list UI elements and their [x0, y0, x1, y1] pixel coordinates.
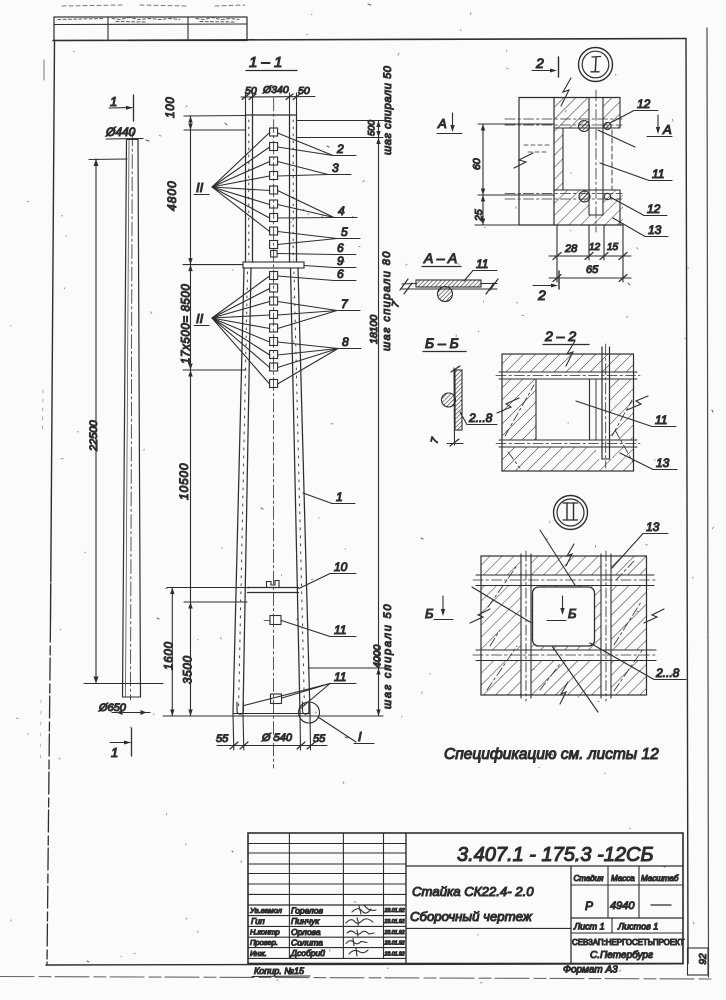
svg-text:50: 50	[298, 85, 310, 97]
svg-text:2 – 2: 2 – 2	[544, 328, 576, 344]
svg-text:Б: Б	[425, 606, 434, 621]
svg-text:Б – Б: Б – Б	[425, 335, 459, 351]
svg-text:100: 100	[165, 96, 177, 118]
svg-text:1600: 1600	[164, 641, 176, 670]
svg-text:2: 2	[535, 55, 544, 71]
svg-text:1: 1	[110, 94, 117, 109]
svg-text:Ø340: Ø340	[262, 84, 289, 96]
svg-text:2...8: 2...8	[655, 666, 680, 680]
svg-text:Формат А3: Формат А3	[563, 965, 618, 976]
svg-text:Инж.: Инж.	[250, 949, 267, 958]
svg-text:13: 13	[646, 520, 660, 534]
svg-text:A: A	[662, 122, 672, 137]
svg-text:12: 12	[637, 97, 651, 111]
svg-text:8: 8	[342, 335, 349, 349]
svg-text:Ø 540: Ø 540	[261, 732, 293, 744]
svg-text:65: 65	[586, 264, 599, 276]
svg-text:23.01.92: 23.01.92	[384, 952, 405, 958]
svg-text:Дсобрий: Дсобрий	[290, 948, 325, 958]
svg-text:II: II	[196, 311, 204, 326]
svg-text:3: 3	[332, 161, 339, 175]
svg-text:11: 11	[334, 670, 346, 684]
svg-text:Сборочный чертеж: Сборочный чертеж	[410, 909, 533, 924]
svg-text:Спецификацию см. листы 12: Спецификацию см. листы 12	[444, 746, 659, 763]
svg-text:7: 7	[429, 436, 441, 445]
svg-text:Листов 1: Листов 1	[617, 922, 658, 932]
svg-text:Гип: Гип	[251, 916, 265, 926]
svg-text:1: 1	[336, 490, 343, 504]
svg-text:Н.контр: Н.контр	[250, 928, 280, 937]
svg-text:10500: 10500	[177, 463, 191, 500]
svg-text:СЕВЗАП:НЕРГОСЕТЬПРОЕКТ: СЕВЗАП:НЕРГОСЕТЬПРОЕКТ	[572, 938, 685, 947]
svg-text:5: 5	[341, 225, 348, 239]
svg-text:A – A: A – A	[423, 250, 457, 266]
svg-text:1 – 1: 1 – 1	[249, 54, 282, 71]
svg-text:7: 7	[341, 297, 349, 311]
svg-text:шаг спирали 50: шаг спирали 50	[382, 65, 394, 155]
svg-text:2: 2	[336, 142, 344, 156]
svg-text:60: 60	[471, 158, 483, 170]
svg-text:2: 2	[537, 287, 546, 303]
svg-text:10: 10	[334, 560, 348, 574]
svg-text:13: 13	[656, 456, 670, 470]
svg-text:4940: 4940	[610, 900, 635, 912]
svg-text:3500: 3500	[183, 655, 195, 684]
svg-text:28: 28	[564, 243, 578, 255]
svg-text:1: 1	[111, 745, 118, 760]
svg-text:Р: Р	[585, 899, 593, 913]
svg-text:Масса: Масса	[611, 874, 635, 883]
svg-text:11: 11	[652, 167, 664, 181]
svg-text:Стадия: Стадия	[574, 874, 605, 883]
svg-text:Пинчук: Пинчук	[291, 916, 320, 926]
svg-text:Ø440: Ø440	[105, 125, 136, 139]
svg-text:11: 11	[334, 623, 346, 637]
svg-text:Копир. №15: Копир. №15	[254, 966, 305, 976]
svg-text:Стайка СК22.4- 2.0: Стайка СК22.4- 2.0	[412, 884, 534, 899]
svg-text:17x500= 8500: 17x500= 8500	[181, 284, 193, 364]
svg-text:11: 11	[476, 257, 488, 271]
svg-text:9: 9	[337, 254, 344, 268]
svg-text:С.Петербург: С.Петербург	[590, 949, 653, 961]
svg-text:23.01.92: 23.01.92	[384, 941, 405, 947]
svg-text:I: I	[358, 729, 362, 744]
svg-text:55: 55	[313, 733, 326, 745]
svg-text:4800: 4800	[165, 180, 179, 211]
svg-text:Б: Б	[568, 606, 577, 621]
svg-text:Солита: Солита	[291, 938, 323, 948]
svg-text:23.01.92: 23.01.92	[384, 930, 405, 936]
svg-text:6: 6	[337, 267, 344, 281]
svg-text:15: 15	[607, 242, 619, 253]
svg-text:6: 6	[337, 241, 344, 255]
svg-text:Провер.: Провер.	[250, 938, 278, 947]
svg-text:Орлова: Орлова	[291, 927, 321, 937]
svg-text:Горелов: Горелов	[291, 906, 324, 916]
svg-text:4: 4	[338, 204, 345, 218]
svg-text:12: 12	[647, 202, 661, 216]
svg-text:23.01.92: 23.01.92	[384, 919, 405, 925]
svg-text:Масштаб: Масштаб	[641, 874, 679, 883]
svg-text:Лист 1: Лист 1	[573, 922, 605, 932]
svg-text:23.01.92: 23.01.92	[384, 908, 405, 914]
svg-text:II: II	[196, 180, 204, 195]
svg-text:500: 500	[367, 119, 378, 136]
svg-text:92: 92	[698, 953, 709, 965]
svg-text:3.407.1 - 175.3 -12СБ: 3.407.1 - 175.3 -12СБ	[457, 844, 653, 866]
svg-text:25: 25	[473, 209, 485, 222]
svg-text:22500: 22500	[88, 420, 100, 452]
svg-text:13: 13	[648, 223, 662, 237]
svg-text:55: 55	[216, 733, 229, 745]
svg-text:12: 12	[589, 242, 601, 253]
svg-text:2...8: 2...8	[468, 411, 493, 425]
svg-text:Ув.вамол: Ув.вамол	[249, 906, 283, 915]
svg-text:шаг спирали 50: шаг спирали 50	[382, 603, 394, 709]
svg-text:11: 11	[655, 413, 667, 427]
svg-text:18100: 18100	[368, 315, 380, 344]
svg-text:A: A	[437, 116, 447, 131]
